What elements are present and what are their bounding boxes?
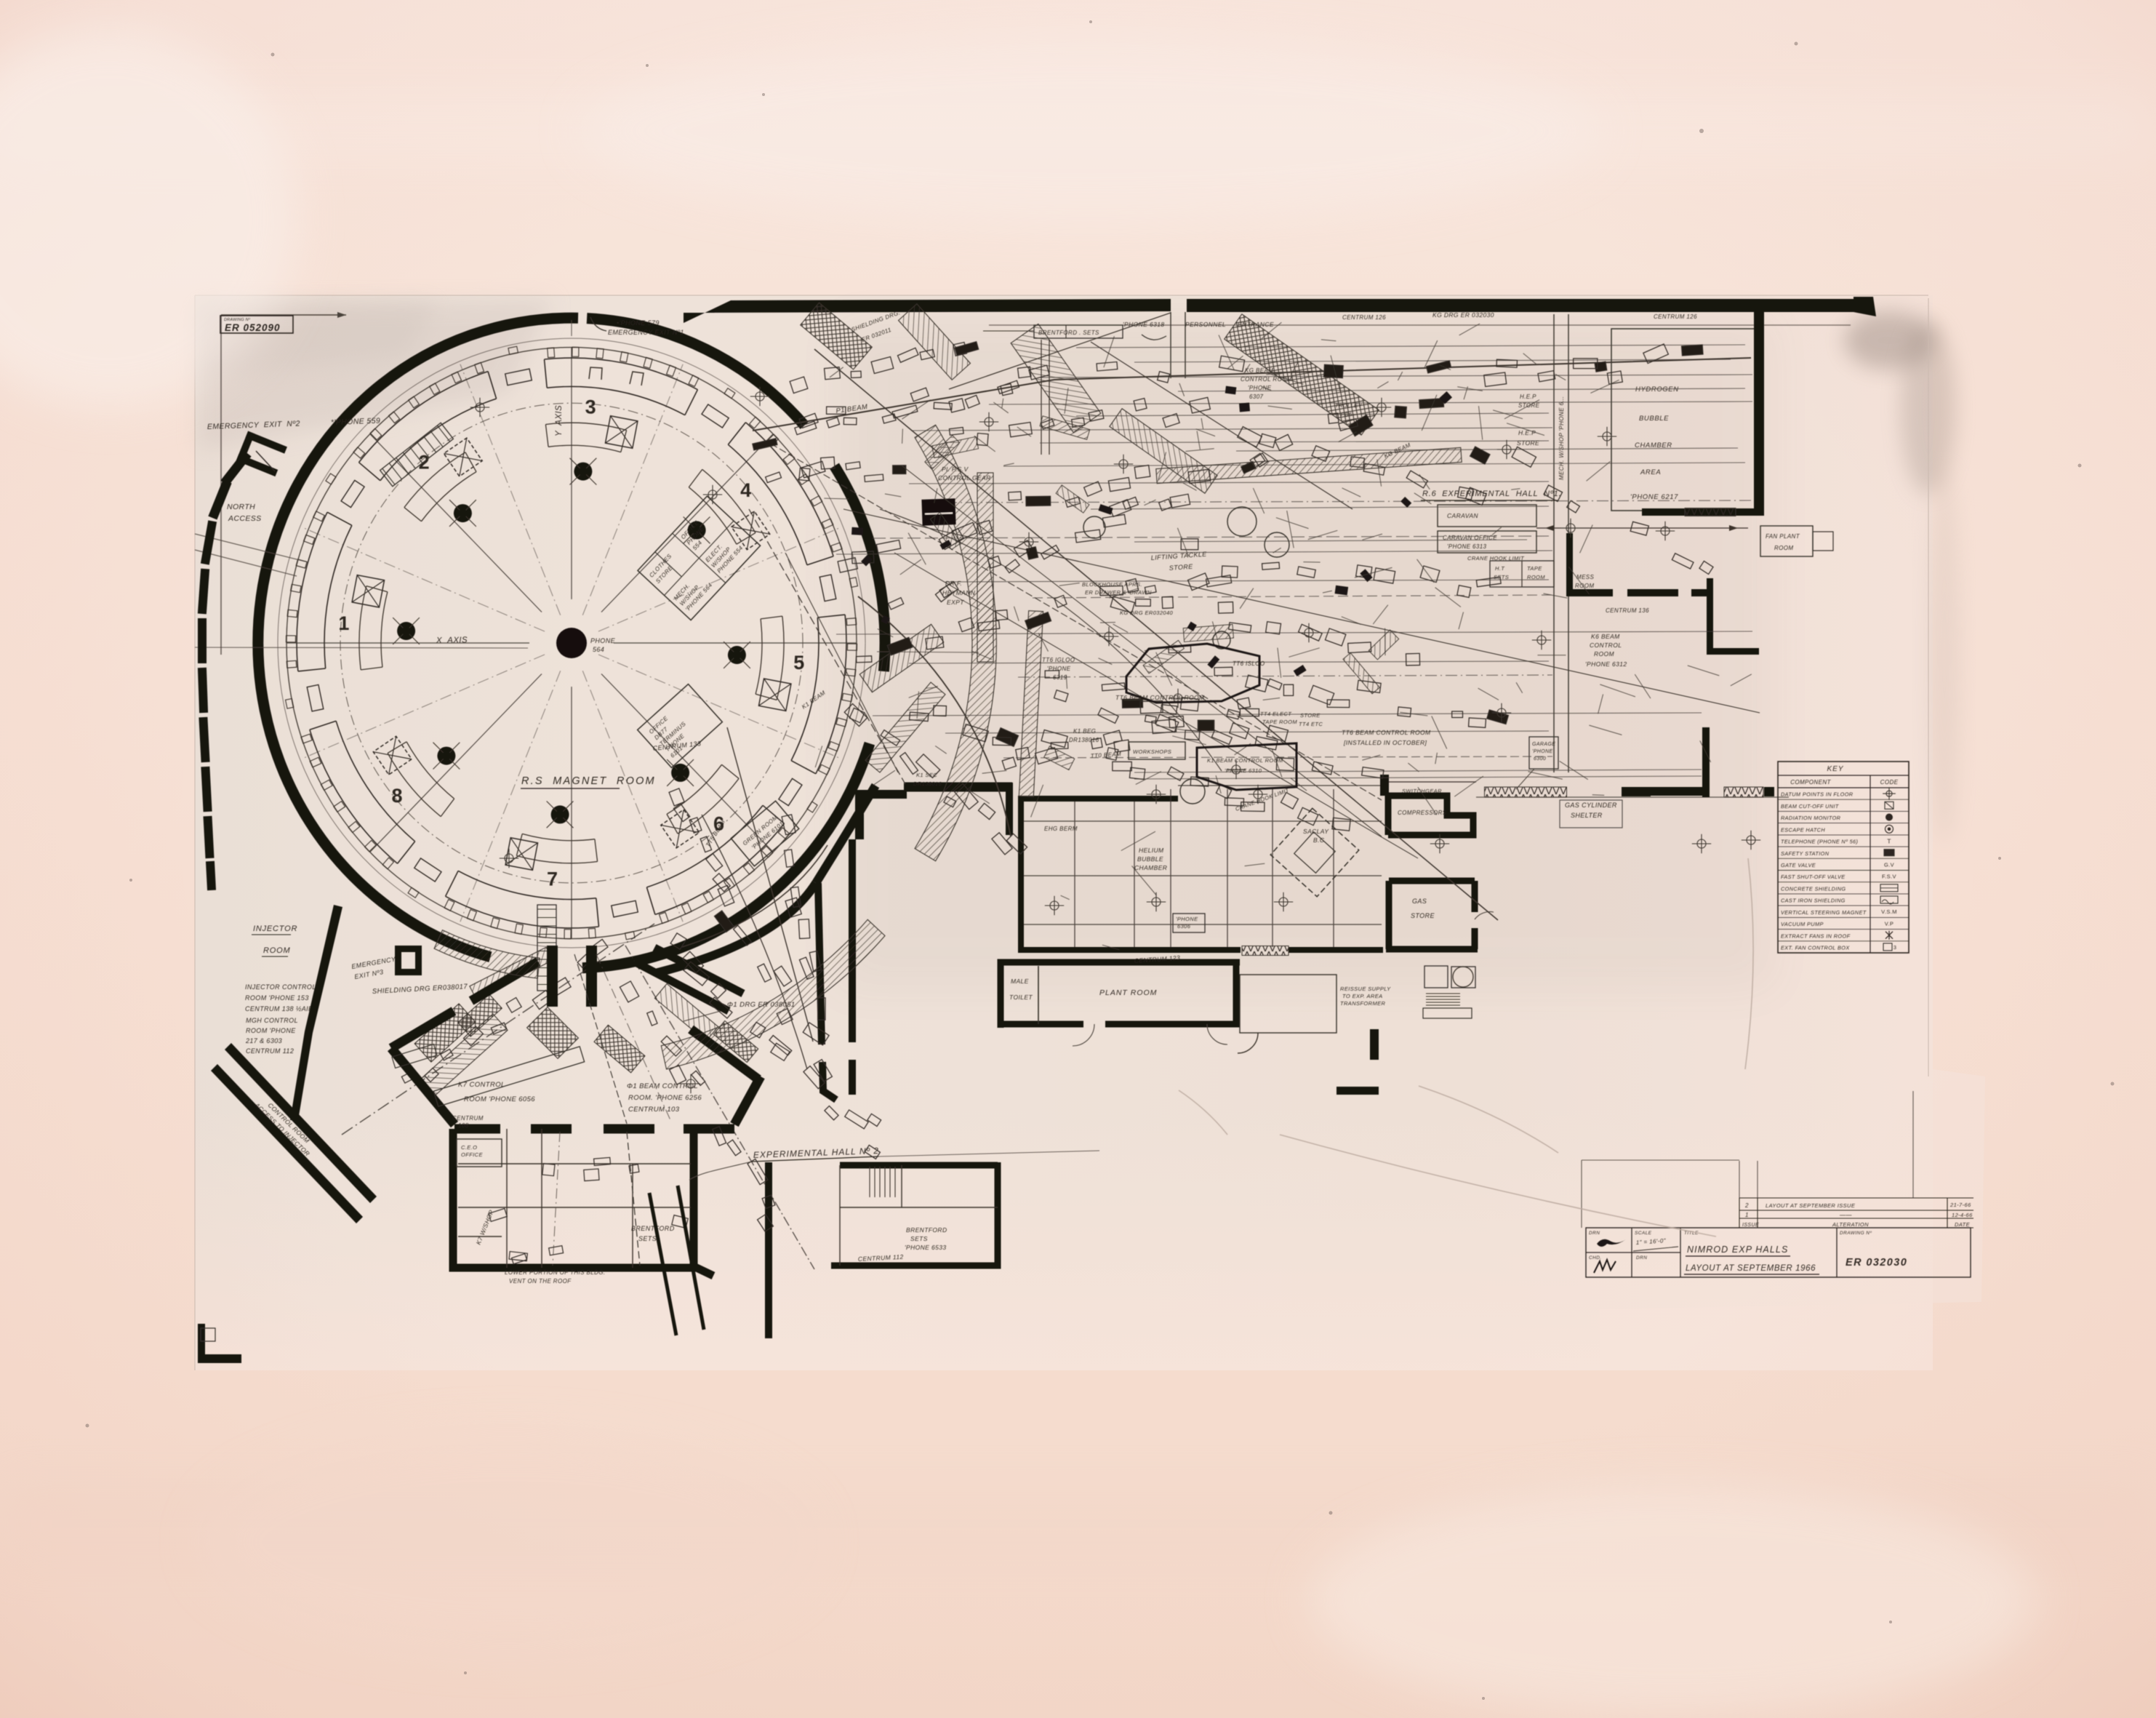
svg-text:TAPE ROOM: TAPE ROOM bbox=[1262, 719, 1297, 725]
svg-text:'PHONE: 'PHONE bbox=[1176, 916, 1198, 922]
svg-text:ER 052090: ER 052090 bbox=[225, 322, 281, 333]
svg-text:DATE: DATE bbox=[1955, 1221, 1971, 1228]
svg-text:R.S MAGNET ROOM: R.S MAGNET ROOM bbox=[521, 775, 656, 787]
svg-text:ROOM 'PHONE 153: ROOM 'PHONE 153 bbox=[245, 994, 309, 1002]
svg-text:217 & 6303: 217 & 6303 bbox=[245, 1037, 282, 1044]
svg-text:DRN: DRN bbox=[1636, 1255, 1647, 1260]
svg-text:LAYOUT AT SEPTEMBER ISSUE: LAYOUT AT SEPTEMBER ISSUE bbox=[1766, 1202, 1856, 1209]
svg-text:1: 1 bbox=[338, 612, 349, 634]
svg-text:VERTICAL STEERING MAGNET: VERTICAL STEERING MAGNET bbox=[1781, 909, 1867, 916]
svg-text:PERSONNEL: PERSONNEL bbox=[1185, 321, 1226, 328]
svg-text:——: —— bbox=[1839, 1212, 1852, 1218]
svg-text:LOWER PORTION OF THIS BLDG.: LOWER PORTION OF THIS BLDG. bbox=[505, 1269, 606, 1276]
svg-text:LAYOUT AT SEPTEMBER 1966: LAYOUT AT SEPTEMBER 1966 bbox=[1686, 1264, 1816, 1273]
svg-text:ER 032030: ER 032030 bbox=[1846, 1257, 1907, 1268]
svg-text:6300: 6300 bbox=[1534, 756, 1546, 762]
svg-text:F.S.V: F.S.V bbox=[1882, 874, 1896, 880]
svg-text:HEYMANN: HEYMANN bbox=[942, 589, 976, 596]
svg-text:CONTROL: CONTROL bbox=[1590, 642, 1622, 649]
svg-text:C.E.O: C.E.O bbox=[461, 1144, 477, 1151]
svg-text:108: 108 bbox=[458, 1122, 469, 1129]
svg-text:ISSUE: ISSUE bbox=[1742, 1223, 1759, 1228]
svg-text:GAS CYLINDER: GAS CYLINDER bbox=[1565, 802, 1617, 809]
svg-text:TT6 IGLOO: TT6 IGLOO bbox=[1042, 657, 1075, 663]
svg-text:TO EXP. AREA: TO EXP. AREA bbox=[1342, 993, 1383, 999]
svg-text:MGH CONTROL: MGH CONTROL bbox=[246, 1017, 298, 1024]
svg-text:CHAMBER: CHAMBER bbox=[1134, 864, 1167, 871]
svg-text:ROOM: ROOM bbox=[263, 946, 290, 955]
svg-text:BLOCKHOUSE APRS.: BLOCKHOUSE APRS. bbox=[1082, 581, 1142, 588]
svg-text:ROOM 'PHONE 6056: ROOM 'PHONE 6056 bbox=[464, 1095, 535, 1103]
svg-text:'PHONE 6312: 'PHONE 6312 bbox=[1585, 660, 1627, 668]
svg-text:6319: 6319 bbox=[1053, 674, 1067, 681]
svg-text:8: 8 bbox=[391, 785, 402, 807]
svg-text:FAN PLANT: FAN PLANT bbox=[1766, 533, 1800, 540]
svg-text:DR138016: DR138016 bbox=[1069, 737, 1099, 743]
svg-text:'PHONE: 'PHONE bbox=[1532, 749, 1553, 754]
svg-text:EHG BERM: EHG BERM bbox=[1044, 826, 1078, 832]
svg-text:H.E.P: H.E.P bbox=[1518, 429, 1536, 436]
svg-text:ROOM 'PHONE: ROOM 'PHONE bbox=[246, 1027, 296, 1034]
svg-text:R.6 EXPERIMENTAL HALL Nº1.: R.6 EXPERIMENTAL HALL Nº1. bbox=[1422, 490, 1561, 498]
svg-text:PLANT ROOM: PLANT ROOM bbox=[1099, 988, 1157, 997]
svg-text:TT4 ETC: TT4 ETC bbox=[1299, 721, 1323, 727]
svg-text:CONTROL ROOM: CONTROL ROOM bbox=[1241, 376, 1292, 383]
svg-text:GATE VALVE: GATE VALVE bbox=[1781, 862, 1816, 868]
svg-text:INJECTOR: INJECTOR bbox=[253, 924, 297, 933]
svg-text:K1 BEG: K1 BEG bbox=[1073, 728, 1096, 735]
svg-text:BRENTFORD . SETS: BRENTFORD . SETS bbox=[1038, 329, 1099, 336]
svg-text:VACUUM PUMP: VACUUM PUMP bbox=[1781, 921, 1824, 927]
svg-text:4: 4 bbox=[740, 479, 751, 501]
svg-text:SHELTER: SHELTER bbox=[1571, 812, 1603, 819]
svg-text:6307: 6307 bbox=[1249, 393, 1264, 400]
svg-text:K1 BEAM CONTROL ROOM: K1 BEAM CONTROL ROOM bbox=[1207, 757, 1283, 764]
svg-text:DATUM POINTS IN FLOOR: DATUM POINTS IN FLOOR bbox=[1781, 791, 1854, 798]
svg-text:ROOM: ROOM bbox=[1774, 545, 1794, 551]
svg-text:CENTRUM 136: CENTRUM 136 bbox=[1606, 607, 1649, 614]
svg-text:BUBBLE: BUBBLE bbox=[1639, 415, 1669, 423]
svg-text:•'PHONE 579: •'PHONE 579 bbox=[617, 319, 660, 327]
svg-text:SETS: SETS bbox=[910, 1235, 928, 1242]
svg-text:GAS: GAS bbox=[1412, 898, 1427, 905]
svg-text:1: 1 bbox=[1745, 1212, 1749, 1218]
svg-text:RADIATION MONITOR: RADIATION MONITOR bbox=[1781, 815, 1841, 821]
svg-text:BEAM CUT-OFF UNIT: BEAM CUT-OFF UNIT bbox=[1781, 803, 1839, 810]
svg-text:12-4-66: 12-4-66 bbox=[1952, 1212, 1973, 1218]
svg-text:COMPONENT: COMPONENT bbox=[1790, 779, 1831, 786]
svg-text:'PHONE 6533: 'PHONE 6533 bbox=[905, 1244, 947, 1251]
svg-text:ESCAPE HATCH: ESCAPE HATCH bbox=[1781, 826, 1825, 833]
svg-text:5: 5 bbox=[793, 652, 804, 674]
svg-text:KG DRG ER032040: KG DRG ER032040 bbox=[1120, 610, 1174, 616]
svg-text:PB6: PB6 bbox=[1341, 411, 1352, 417]
svg-text:DR F.: DR F. bbox=[945, 580, 962, 587]
svg-text:CARAVAN: CARAVAN bbox=[1447, 512, 1478, 519]
svg-text:'PHONE: 'PHONE bbox=[1047, 666, 1071, 672]
svg-text:V.S.M: V.S.M bbox=[1881, 908, 1897, 915]
svg-text:CHD.: CHD. bbox=[1589, 1255, 1602, 1260]
svg-text:NORTH: NORTH bbox=[227, 503, 255, 511]
svg-text:564: 564 bbox=[593, 646, 604, 653]
svg-text:TRANSFORMER: TRANSFORMER bbox=[1340, 1000, 1386, 1007]
svg-text:KG DRG ER 032030: KG DRG ER 032030 bbox=[1432, 311, 1494, 319]
svg-text:AREA: AREA bbox=[1640, 468, 1661, 476]
svg-text:T: T bbox=[1887, 838, 1891, 845]
svg-text:3: 3 bbox=[585, 396, 596, 418]
svg-text:H.T: H.T bbox=[1495, 565, 1505, 572]
svg-text:CENTRUM 103: CENTRUM 103 bbox=[628, 1106, 680, 1114]
svg-text:CENTRUM 126: CENTRUM 126 bbox=[1342, 314, 1386, 321]
svg-text:ACCESS: ACCESS bbox=[228, 514, 262, 523]
svg-text:STORE: STORE bbox=[1300, 712, 1321, 719]
svg-text:TT6 ISLOO: TT6 ISLOO bbox=[1233, 660, 1265, 667]
svg-text:'PHONE 6217: 'PHONE 6217 bbox=[1630, 493, 1678, 501]
svg-text:STORE: STORE bbox=[1411, 912, 1435, 919]
svg-text:DRN: DRN bbox=[1589, 1231, 1600, 1236]
svg-text:TT6 BEAM CONTROL ROOM: TT6 BEAM CONTROL ROOM bbox=[1342, 729, 1431, 736]
svg-text:CENTRUM 138 ½AIR: CENTRUM 138 ½AIR bbox=[245, 1005, 313, 1012]
svg-text:21-7-66: 21-7-66 bbox=[1949, 1202, 1971, 1208]
svg-text:K7 CONTROL: K7 CONTROL bbox=[458, 1081, 505, 1089]
svg-text:OFFICE: OFFICE bbox=[461, 1151, 483, 1158]
svg-text:EXPT: EXPT bbox=[947, 599, 964, 606]
svg-text:EMERGENCY EXIT Nº1: EMERGENCY EXIT Nº1 bbox=[608, 329, 684, 336]
svg-text:ROOM. 'PHONE 6256: ROOM. 'PHONE 6256 bbox=[628, 1094, 702, 1102]
svg-text:K6 BEAM: K6 BEAM bbox=[1591, 633, 1620, 640]
svg-text:CENTRUM: CENTRUM bbox=[452, 1115, 484, 1122]
svg-text:EXT. FAN CONTROL BOX: EXT. FAN CONTROL BOX bbox=[1781, 945, 1850, 951]
svg-text:MESS: MESS bbox=[1576, 574, 1595, 580]
svg-text:DR138016: DR138016 bbox=[913, 780, 942, 787]
svg-text:CENTRUM 126: CENTRUM 126 bbox=[1654, 313, 1697, 320]
svg-text:Y AXIS: Y AXIS bbox=[555, 405, 564, 436]
svg-text:INJECTOR CONTROL: INJECTOR CONTROL bbox=[245, 983, 316, 991]
svg-text:G.V: G.V bbox=[1884, 861, 1894, 868]
svg-text:NIMROD EXP HALLS: NIMROD EXP HALLS bbox=[1687, 1244, 1788, 1255]
svg-text:ROOM: ROOM bbox=[1594, 650, 1615, 658]
svg-text:GARAGE: GARAGE bbox=[1532, 742, 1555, 747]
svg-text:SCALE: SCALE bbox=[1635, 1231, 1652, 1236]
svg-text:TOILET: TOILET bbox=[1009, 994, 1033, 1001]
svg-text:REISSUE SUPPLY: REISSUE SUPPLY bbox=[1340, 986, 1391, 992]
svg-text:H.E.P: H.E.P bbox=[1520, 393, 1536, 400]
svg-text:BRENTFORD: BRENTFORD bbox=[631, 1225, 675, 1232]
svg-text:SACLAY: SACLAY bbox=[1303, 828, 1329, 835]
svg-text:HELIUM: HELIUM bbox=[1139, 847, 1164, 854]
svg-text:KG BEAM: KG BEAM bbox=[1245, 367, 1273, 374]
svg-text:FAST SHUT-OFF VALVE: FAST SHUT-OFF VALVE bbox=[1781, 874, 1846, 880]
svg-text:PHONE: PHONE bbox=[590, 637, 616, 644]
svg-text:B.C: B.C bbox=[1313, 836, 1325, 844]
svg-text:'PHONE 6313: 'PHONE 6313 bbox=[1447, 543, 1487, 550]
svg-text:'PHONE 6310: 'PHONE 6310 bbox=[1225, 767, 1262, 774]
svg-text:MECH. W/SHOP 'PHONE 6...: MECH. W/SHOP 'PHONE 6... bbox=[1558, 396, 1565, 480]
svg-text:3: 3 bbox=[1893, 946, 1896, 951]
svg-text:[INSTALLED IN OCTOBER]: [INSTALLED IN OCTOBER] bbox=[1343, 739, 1427, 746]
svg-text:WORKSHOPS: WORKSHOPS bbox=[1133, 748, 1171, 755]
svg-text:DRAWING Nº: DRAWING Nº bbox=[224, 317, 251, 322]
svg-text:7: 7 bbox=[547, 868, 558, 890]
svg-text:KEY: KEY bbox=[1827, 765, 1843, 773]
svg-text:MALE: MALE bbox=[1011, 978, 1029, 985]
svg-text:BRENTFORD: BRENTFORD bbox=[906, 1226, 947, 1234]
svg-text:TT4 ELECT: TT4 ELECT bbox=[1260, 711, 1292, 717]
svg-text:STORE: STORE bbox=[1517, 439, 1539, 447]
svg-text:ER DRAWER & 'DRAWN: ER DRAWER & 'DRAWN bbox=[1085, 589, 1152, 596]
svg-text:△: △ bbox=[1177, 476, 1182, 482]
svg-text:TROLLEY: TROLLEY bbox=[1335, 402, 1363, 409]
svg-text:6306: 6306 bbox=[1177, 923, 1191, 930]
svg-text:SETS: SETS bbox=[638, 1235, 657, 1242]
svg-text:VENT ON THE ROOF: VENT ON THE ROOF bbox=[509, 1278, 572, 1284]
svg-text:DRAWING Nº: DRAWING Nº bbox=[1840, 1231, 1872, 1236]
svg-text:SAFETY STATION: SAFETY STATION bbox=[1781, 850, 1830, 857]
svg-text:HYDROGEN: HYDROGEN bbox=[1635, 385, 1679, 393]
svg-text:X AXIS: X AXIS bbox=[436, 636, 468, 645]
svg-text:EXTRACT FANS IN ROOF: EXTRACT FANS IN ROOF bbox=[1781, 932, 1851, 939]
svg-text:'PHONE: 'PHONE bbox=[1248, 385, 1272, 391]
svg-text:CENTRUM 112: CENTRUM 112 bbox=[246, 1047, 294, 1055]
svg-text:TELEPHONE (PHONE Nº 56): TELEPHONE (PHONE Nº 56) bbox=[1781, 839, 1858, 845]
svg-text:TAPE: TAPE bbox=[1527, 565, 1542, 572]
svg-text:*'PHONE 559: *'PHONE 559 bbox=[331, 417, 381, 427]
svg-text:CONCRETE SHIELDING: CONCRETE SHIELDING bbox=[1781, 885, 1846, 892]
svg-text:2: 2 bbox=[1744, 1202, 1749, 1209]
svg-text:COMPRESSORS: COMPRESSORS bbox=[1398, 810, 1447, 816]
svg-text:STORE: STORE bbox=[1518, 402, 1540, 409]
svg-text:TT6 BEAM CONTROL ROOM: TT6 BEAM CONTROL ROOM bbox=[1115, 694, 1205, 701]
svg-text:CONTROL GEAR: CONTROL GEAR bbox=[938, 474, 991, 482]
svg-text:ALTERATION: ALTERATION bbox=[1832, 1221, 1869, 1228]
svg-text:V.P: V.P bbox=[1885, 921, 1894, 927]
svg-text:K1 SEC: K1 SEC bbox=[916, 772, 937, 778]
svg-text:CODE: CODE bbox=[1880, 779, 1899, 786]
svg-text:Pl. P.S.V: Pl. P.S.V bbox=[942, 466, 969, 473]
svg-text:CRANE HOOK LIMIT: CRANE HOOK LIMIT bbox=[1467, 555, 1525, 562]
svg-text:BUBBLE: BUBBLE bbox=[1137, 855, 1163, 863]
svg-text:CAST IRON SHIELDING: CAST IRON SHIELDING bbox=[1781, 898, 1846, 904]
